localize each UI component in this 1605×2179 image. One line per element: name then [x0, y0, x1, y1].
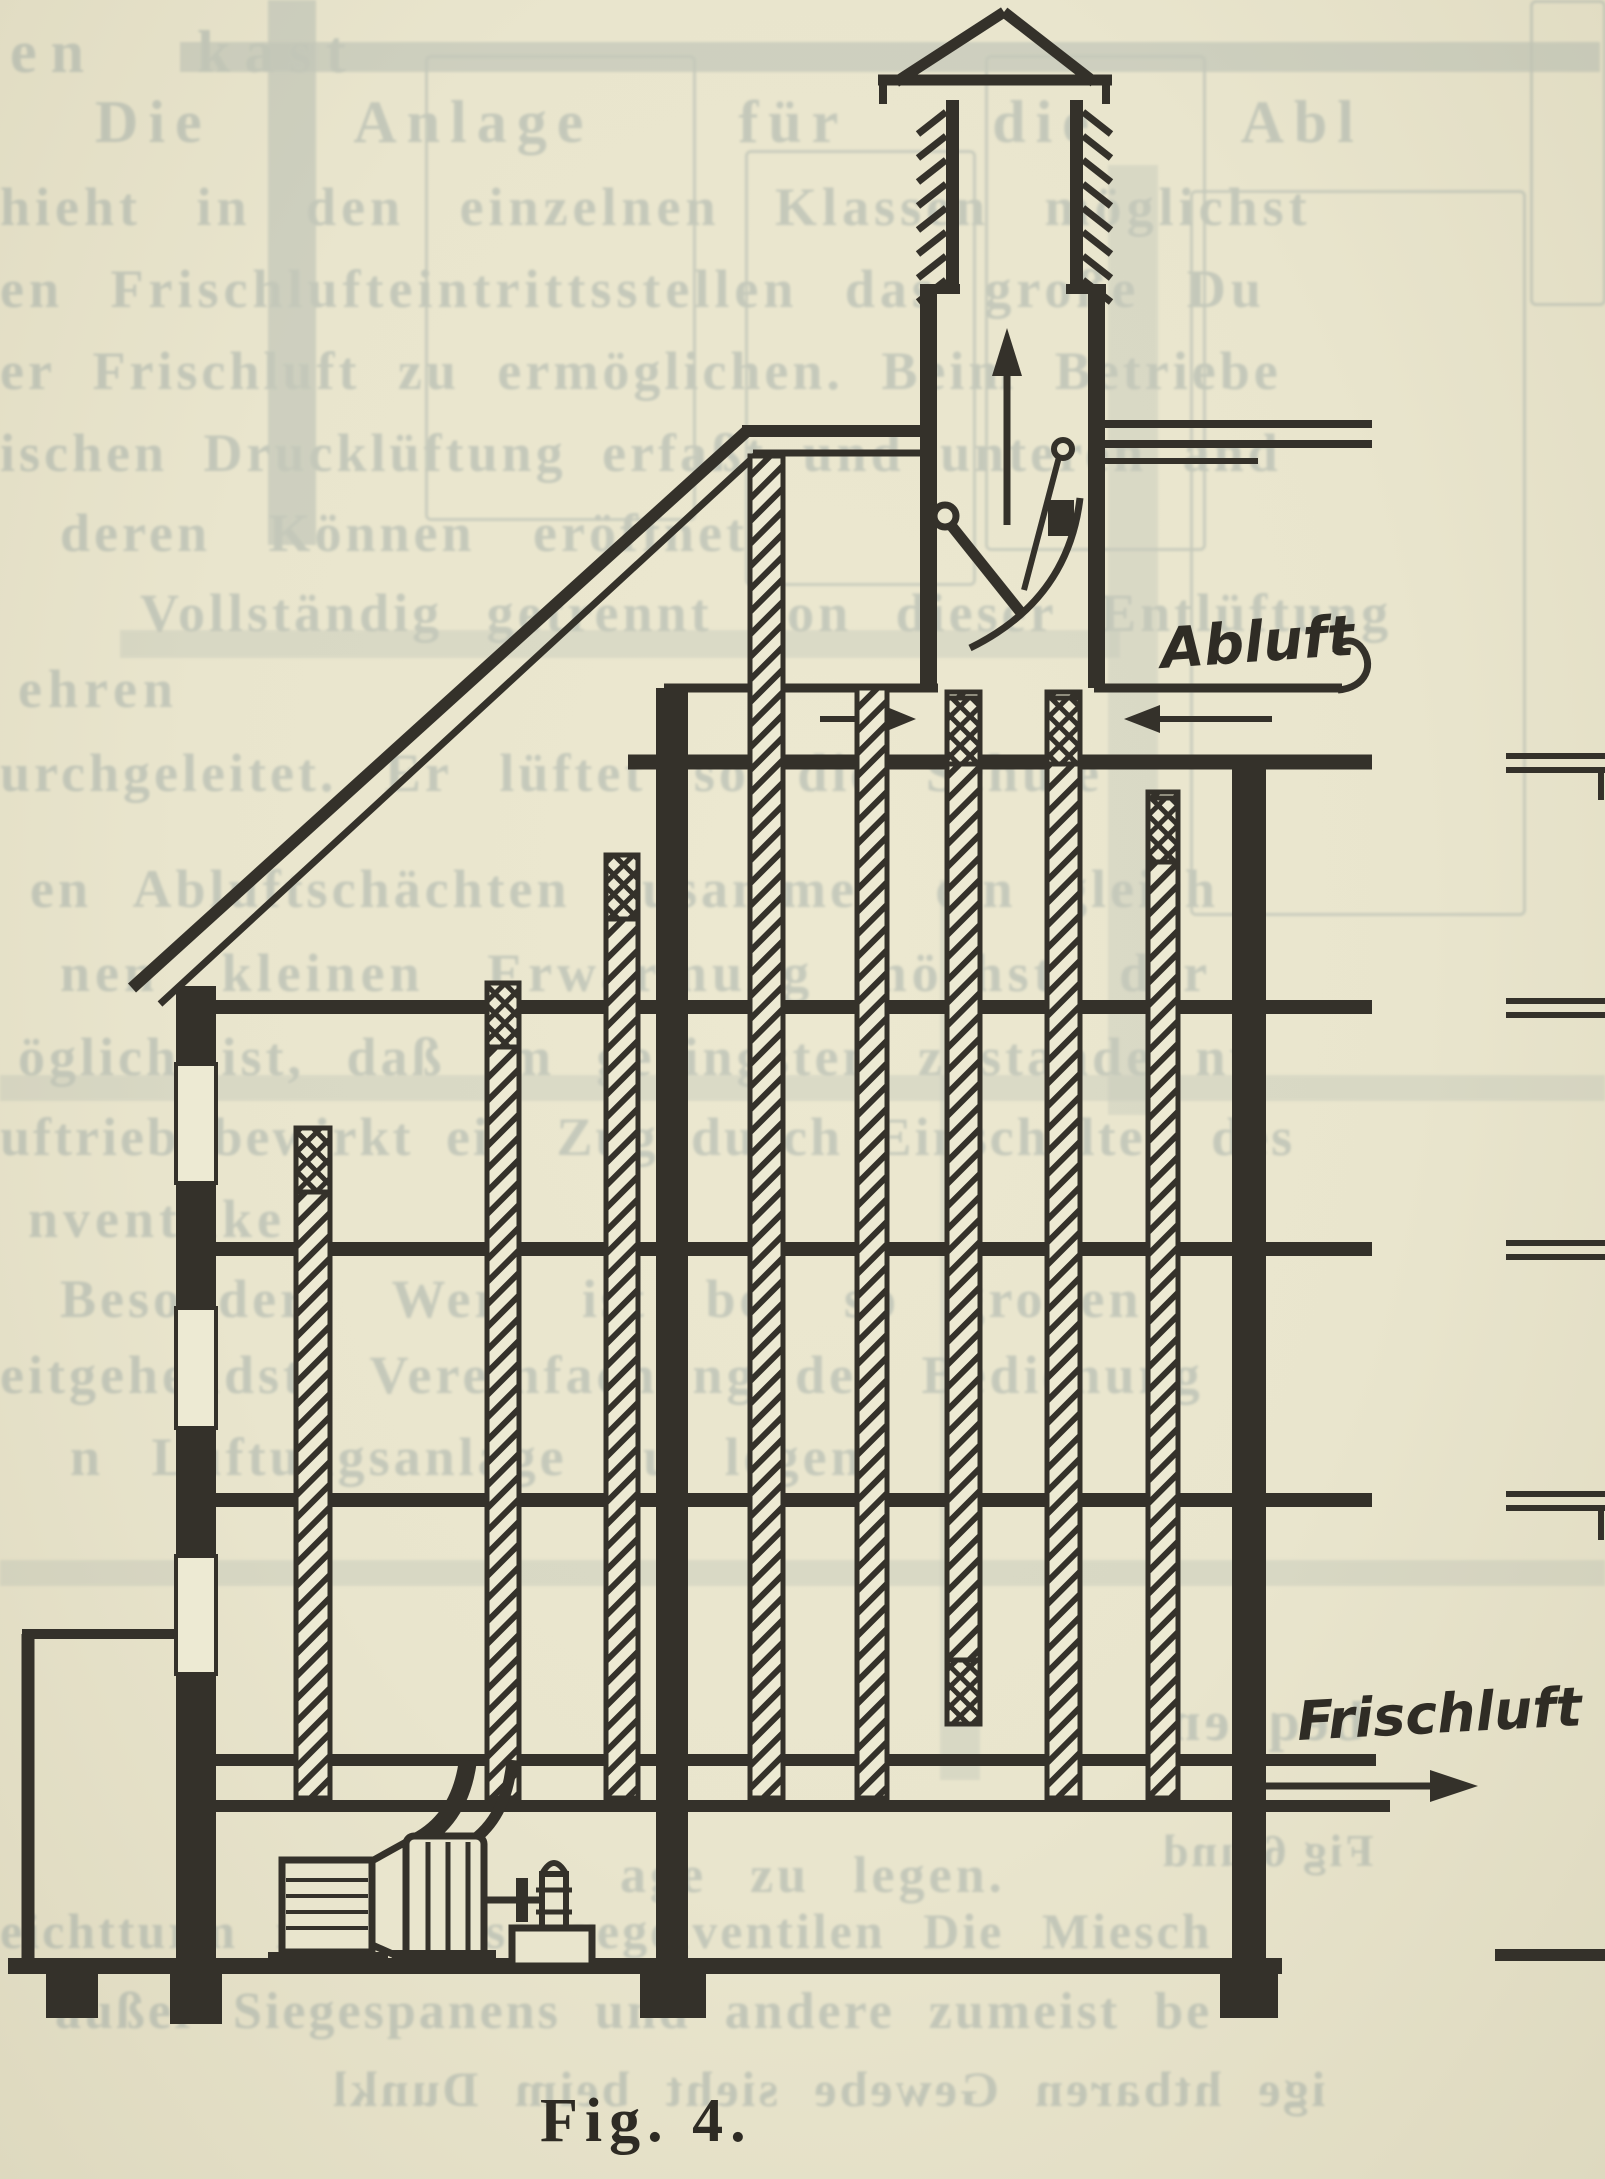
- ventilation-duct: [750, 456, 783, 1798]
- airflow-arrow-left-icon: [1124, 705, 1272, 733]
- footing: [1220, 1966, 1278, 2018]
- ventilation-duct: [1047, 692, 1080, 1798]
- basement: [8, 1966, 1282, 2024]
- duct-top-cap: [947, 698, 980, 764]
- duct-top-cap: [606, 855, 638, 919]
- fan-housing: [406, 1836, 484, 1962]
- footing: [640, 1966, 706, 2018]
- wall-window-opening: [176, 1556, 216, 1674]
- wall-window-opening: [176, 1308, 216, 1428]
- wall-window-opening: [176, 1064, 216, 1183]
- figure-caption: Fig. 4.: [540, 2086, 753, 2157]
- frischluft-arrow-icon: [1256, 1770, 1478, 1802]
- valve-pedestal: [512, 1928, 592, 1966]
- damper-counterweight: [1048, 500, 1074, 536]
- stack-upper-wall-right: [1070, 100, 1083, 292]
- valve-body: [542, 1874, 566, 1928]
- ventilation-duct: [606, 855, 638, 1798]
- roof: [132, 431, 928, 1004]
- ventilation-section-diagram: Abluft Frischluft: [0, 0, 1605, 2179]
- duct-top-cap: [1148, 798, 1178, 862]
- stack-lower-wall-left: [920, 288, 937, 688]
- duct-bottom-cap: [947, 1660, 980, 1724]
- ventilation-duct: [1148, 792, 1178, 1798]
- motor-pedestal: [268, 1952, 388, 1966]
- right-roof-duct-lines: [1102, 424, 1372, 461]
- stack-cap-roof-right: [1004, 12, 1094, 82]
- shaft-coupling: [516, 1878, 528, 1922]
- roof-outer-slope: [132, 431, 747, 988]
- left-annex: [22, 1634, 178, 1958]
- ventilation-duct: [947, 692, 980, 1724]
- frischluft-label: Frischluft: [1295, 1675, 1585, 1753]
- footing: [170, 1966, 222, 2024]
- exhaust-stack: [878, 12, 1112, 688]
- duct-top-cap: [296, 1128, 330, 1192]
- ventilation-duct: [487, 983, 519, 1798]
- ventilation-duct: [857, 688, 887, 1798]
- stack-upper-wall-left: [946, 100, 959, 292]
- right-edge-duct-stubs: [1495, 756, 1605, 1955]
- airflow-arrow-up-icon: [992, 328, 1022, 525]
- scanned-book-page: en kast Die Anlage für die Abl hieht in …: [0, 0, 1605, 2179]
- footing: [46, 1966, 98, 2018]
- right-wall: [1232, 755, 1266, 1960]
- floor-slabs: [216, 762, 1372, 1500]
- duct-top-cap: [487, 983, 519, 1047]
- duct-top-cap: [1047, 698, 1080, 764]
- fan-pedestal: [392, 1950, 496, 1966]
- stack-lower-wall-right: [1088, 288, 1105, 688]
- center-wall: [656, 688, 688, 1960]
- left-exterior-wall: [176, 986, 216, 1958]
- stack-cap-roof-left: [896, 12, 1004, 82]
- ventilation-duct: [296, 1128, 330, 1798]
- motor: [282, 1860, 372, 1952]
- abluft-label: Abluft: [1154, 603, 1358, 682]
- ground-air-channel: [216, 1760, 1390, 1806]
